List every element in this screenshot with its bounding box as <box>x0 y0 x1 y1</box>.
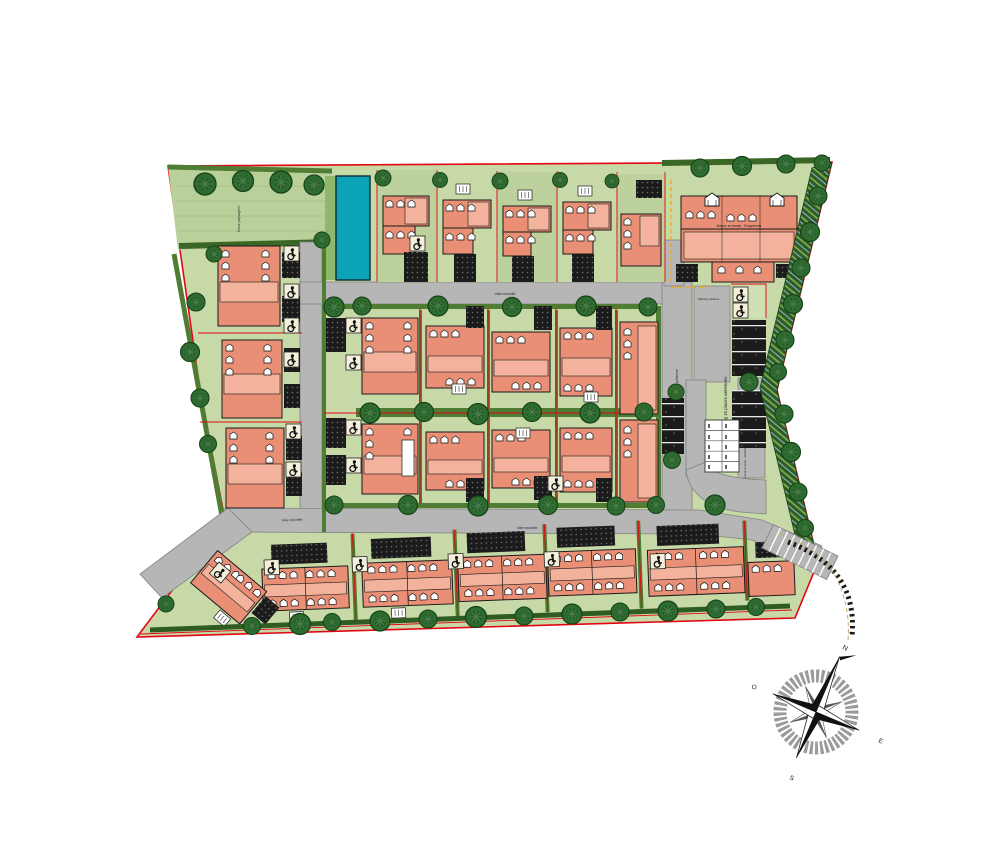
site-plan-stage: Noue paysagère Voie nouvelle Voie nouvel… <box>0 0 1000 857</box>
compass-south-label: S <box>788 774 795 782</box>
bike-refuse-label: Local 2 roues - déchets <box>743 446 747 478</box>
collective-building-label: Maison en bande - 5 logements <box>717 224 762 228</box>
parking-aisle-low <box>686 380 706 476</box>
road-bottom-label-2: Voie nouvelle <box>517 526 538 530</box>
swale-label: Noue paysagère <box>237 206 241 232</box>
compass-north-label: N <box>841 644 848 652</box>
road-top-label: Voie nouvelle <box>495 292 516 296</box>
retention-basin <box>325 176 370 289</box>
top-row-lots <box>377 170 665 282</box>
parking-visitors-label: Parking visiteurs <box>698 297 720 301</box>
road-bottom-label: Voie nouvelle <box>281 518 302 523</box>
compass-rose: N E S O <box>750 631 886 783</box>
compass-west-label: O <box>750 683 757 691</box>
site-plan-drawing: Noue paysagère Voie nouvelle Voie nouvel… <box>0 0 1000 857</box>
compass-east-label: E <box>877 737 884 745</box>
